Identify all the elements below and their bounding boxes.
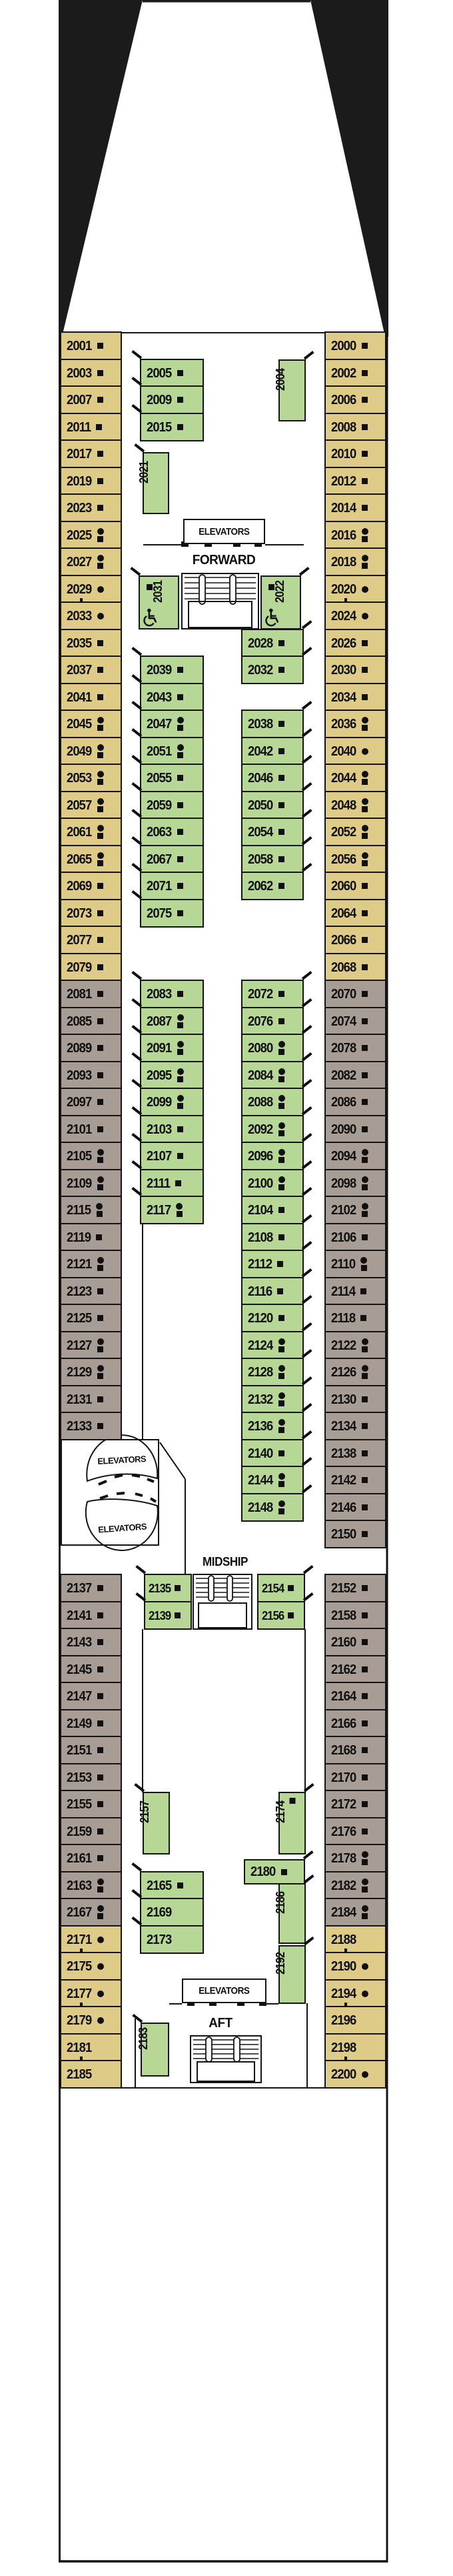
cabin-number: 2192: [274, 1953, 286, 1975]
cabin-2108[interactable]: 2108: [241, 1223, 304, 1252]
cabin-2184[interactable]: 2184: [324, 1898, 386, 1926]
cabin-2192[interactable]: 2192: [278, 1945, 306, 2004]
square-berth-icon: [278, 856, 284, 862]
berth-icons: [278, 775, 284, 781]
cabin-2049[interactable]: 2049: [60, 737, 122, 766]
cabin-number: 2038: [248, 718, 272, 731]
berth-icons: [177, 883, 183, 889]
cabin-2078[interactable]: 2078: [324, 1034, 386, 1062]
cabin-2178[interactable]: 2178: [324, 1844, 386, 1872]
cabin-2157[interactable]: 2157: [143, 1792, 170, 1854]
berth-icons: [97, 1315, 103, 1321]
square-berth-icon: [362, 1720, 368, 1726]
cabin-2110[interactable]: 2110: [324, 1250, 386, 1278]
square-berth-icon: [362, 1913, 368, 1919]
cabin-2172[interactable]: 2172: [324, 1790, 386, 1818]
square-berth-icon: [175, 1180, 181, 1186]
cabin-2061[interactable]: 2061: [60, 818, 122, 846]
cabin-2067[interactable]: 2067: [140, 845, 204, 874]
cabin-2111[interactable]: 2111: [140, 1169, 204, 1198]
cabin-2136[interactable]: 2136: [241, 1412, 304, 1440]
cabin-2070[interactable]: 2070: [324, 980, 386, 1008]
cabin-2002[interactable]: 2002: [324, 359, 386, 387]
berth-icons: [362, 1747, 368, 1753]
cabin-2057[interactable]: 2057: [60, 791, 122, 820]
cabin-2063[interactable]: 2063: [140, 818, 204, 846]
cabin-2080[interactable]: 2080: [241, 1034, 304, 1062]
cabin-2147[interactable]: 2147: [60, 1682, 122, 1710]
cabin-2126[interactable]: 2126: [324, 1358, 386, 1386]
cabin-2173[interactable]: 2173: [140, 1925, 204, 1954]
cabin-2135[interactable]: 2135: [144, 1574, 192, 1602]
berth-icons: [97, 478, 103, 484]
cabin-2038[interactable]: 2038: [241, 710, 304, 738]
cabin-2116[interactable]: 2116: [241, 1277, 304, 1306]
cabin-number: 2078: [331, 1042, 356, 1055]
cabin-2006[interactable]: 2006: [324, 385, 386, 414]
cabin-2138[interactable]: 2138: [324, 1439, 386, 1468]
cabin-2090[interactable]: 2090: [324, 1115, 386, 1144]
cabin-2024[interactable]: 2024: [324, 601, 386, 630]
cabin-2087[interactable]: 2087: [140, 1007, 204, 1036]
cabin-2139[interactable]: 2139: [144, 1601, 192, 1630]
berth-icons: [97, 1149, 104, 1163]
cabin-2035[interactable]: 2035: [60, 629, 122, 658]
cabin-2146[interactable]: 2146: [324, 1493, 386, 1522]
berth-icons: [278, 1392, 285, 1406]
cabin-2117[interactable]: 2117: [140, 1196, 204, 1224]
berth-icons: [362, 343, 368, 349]
cabin-2156[interactable]: 2156: [257, 1601, 305, 1630]
cabin-2034[interactable]: 2034: [324, 683, 386, 712]
cabin-2022[interactable]: 2022: [260, 575, 301, 629]
cabin-2045[interactable]: 2045: [60, 710, 122, 738]
cabin-2089[interactable]: 2089: [60, 1034, 122, 1062]
cabin-number: 2101: [67, 1123, 91, 1136]
cabin-2118[interactable]: 2118: [324, 1304, 386, 1332]
cabin-2190[interactable]: 2190: [324, 1952, 386, 1981]
cabin-2040[interactable]: 2040: [324, 737, 386, 766]
berth-icons: [278, 802, 284, 808]
cabin-2177[interactable]: 2177: [60, 1979, 122, 2008]
square-berth-icon: [97, 883, 103, 889]
cabin-2060[interactable]: 2060: [324, 872, 386, 900]
cabin-2054[interactable]: 2054: [241, 818, 304, 846]
cabin-number: 2092: [248, 1123, 272, 1136]
berth-icons: [177, 829, 183, 835]
circle-berth-icon: [97, 744, 104, 751]
cabin-2119[interactable]: 2119: [60, 1223, 122, 1252]
cabin-number: 2003: [67, 367, 91, 380]
cabin-2153[interactable]: 2153: [60, 1763, 122, 1792]
circle-berth-icon: [97, 1991, 104, 1997]
cabin-2174[interactable]: 2174: [278, 1792, 306, 1854]
cabin-2137[interactable]: 2137: [60, 1574, 122, 1602]
berth-icons: [278, 1315, 284, 1321]
square-berth-icon: [97, 833, 103, 839]
cabin-2101[interactable]: 2101: [60, 1115, 122, 1144]
square-berth-icon: [278, 1481, 284, 1487]
cabin-number: 2032: [248, 664, 272, 677]
cabin-2198[interactable]: 2198: [324, 2033, 386, 2062]
cabin-number: 2060: [331, 880, 356, 893]
cabin-2029[interactable]: 2029: [60, 575, 122, 603]
cabin-2142[interactable]: 2142: [324, 1466, 386, 1494]
cabin-2169[interactable]: 2169: [140, 1898, 204, 1926]
cabin-2196[interactable]: 2196: [324, 2006, 386, 2035]
cabin-number: 2182: [331, 1879, 356, 1892]
square-berth-icon: [177, 1022, 183, 1028]
cabin-2052[interactable]: 2052: [324, 818, 386, 846]
berth-icons: [362, 694, 368, 700]
cabin-2025[interactable]: 2025: [60, 521, 122, 549]
square-berth-icon: [278, 1427, 284, 1433]
cabin-2093[interactable]: 2093: [60, 1061, 122, 1090]
square-berth-icon: [97, 1184, 103, 1190]
cabin-2032[interactable]: 2032: [241, 656, 304, 684]
cabin-2149[interactable]: 2149: [60, 1709, 122, 1738]
cabin-2048[interactable]: 2048: [324, 791, 386, 820]
berth-icons: [360, 1257, 367, 1271]
cabin-2168[interactable]: 2168: [324, 1736, 386, 1764]
cabin-2016[interactable]: 2016: [324, 521, 386, 549]
cabin-2053[interactable]: 2053: [60, 764, 122, 792]
berth-icons: [362, 1612, 368, 1618]
square-berth-icon: [362, 563, 368, 569]
cabin-2001[interactable]: 2001: [60, 331, 122, 360]
cabin-number: 2184: [331, 1906, 356, 1919]
berth-icons: [97, 555, 104, 569]
cabin-2075[interactable]: 2075: [140, 899, 204, 928]
cabin-2200[interactable]: 2200: [324, 2060, 386, 2089]
square-berth-icon: [175, 1612, 181, 1618]
cabin-2019[interactable]: 2019: [60, 467, 122, 495]
cabin-2144[interactable]: 2144: [241, 1466, 304, 1494]
cabin-2026[interactable]: 2026: [324, 629, 386, 658]
cabin-2046[interactable]: 2046: [241, 764, 304, 792]
square-berth-icon: [362, 536, 368, 542]
cabin-2175[interactable]: 2175: [60, 1952, 122, 1981]
cabin-number: 2148: [248, 1501, 272, 1514]
cabin-2171[interactable]: 2171: [60, 1925, 122, 1954]
cabin-2037[interactable]: 2037: [60, 656, 122, 684]
cabin-2039[interactable]: 2039: [140, 656, 204, 684]
cabin-2008[interactable]: 2008: [324, 413, 386, 441]
square-berth-icon: [362, 1099, 368, 1105]
square-berth-icon: [97, 1639, 103, 1645]
square-berth-icon: [97, 1612, 103, 1618]
cabin-2011[interactable]: 2011: [60, 413, 122, 441]
cabin-2064[interactable]: 2064: [324, 899, 386, 928]
midship-elevators-label-1: ELEVATORS: [97, 1454, 147, 1466]
cabin-2163[interactable]: 2163: [60, 1871, 122, 1900]
cabin-2014[interactable]: 2014: [324, 493, 386, 522]
berth-icons: [97, 1099, 103, 1105]
cabin-2158[interactable]: 2158: [324, 1601, 386, 1630]
cabin-2134[interactable]: 2134: [324, 1412, 386, 1440]
cabin-2072[interactable]: 2072: [241, 980, 304, 1008]
cabin-2062[interactable]: 2062: [241, 872, 304, 900]
cabin-2096[interactable]: 2096: [241, 1142, 304, 1170]
berth-icons: [97, 1855, 103, 1861]
cabin-2120[interactable]: 2120: [241, 1304, 304, 1332]
berth-icons: [177, 1126, 183, 1132]
square-berth-icon: [177, 883, 183, 889]
cabin-2161[interactable]: 2161: [60, 1844, 122, 1872]
cabin-2077[interactable]: 2077: [60, 926, 122, 954]
cabin-2162[interactable]: 2162: [324, 1655, 386, 1684]
cabin-2068[interactable]: 2068: [324, 953, 386, 982]
berth-icons: [97, 1585, 103, 1591]
cabin-2079[interactable]: 2079: [60, 953, 122, 982]
cabin-2082[interactable]: 2082: [324, 1061, 386, 1090]
cabin-2069[interactable]: 2069: [60, 872, 122, 900]
cabin-number: 2025: [67, 529, 91, 542]
cabin-2098[interactable]: 2098: [324, 1169, 386, 1198]
cabin-number: 2057: [67, 799, 91, 812]
cabin-2129[interactable]: 2129: [60, 1358, 122, 1386]
cabin-2123[interactable]: 2123: [60, 1277, 122, 1306]
cabin-2103[interactable]: 2103: [140, 1115, 204, 1144]
cabin-2055[interactable]: 2055: [140, 764, 204, 792]
cabin-2127[interactable]: 2127: [60, 1331, 122, 1360]
cabin-number: 2044: [331, 772, 356, 785]
cabin-2004[interactable]: 2004: [278, 359, 306, 421]
cabin-2132[interactable]: 2132: [241, 1385, 304, 1414]
cabin-number: 2158: [331, 1609, 356, 1622]
cabin-2125[interactable]: 2125: [60, 1304, 122, 1332]
cabin-2028[interactable]: 2028: [241, 629, 304, 658]
cabin-number: 2108: [248, 1231, 272, 1244]
berth-icons: [147, 584, 153, 590]
cabin-2112[interactable]: 2112: [241, 1250, 304, 1278]
cabin-2182[interactable]: 2182: [324, 1871, 386, 1900]
cabin-2092[interactable]: 2092: [241, 1115, 304, 1144]
berth-icons: [362, 397, 368, 403]
cabin-2030[interactable]: 2030: [324, 656, 386, 684]
berth-icons: [362, 883, 368, 889]
cabin-2104[interactable]: 2104: [241, 1196, 304, 1224]
berth-icons: [97, 451, 103, 457]
circle-berth-icon: [97, 825, 104, 832]
cabin-2081[interactable]: 2081: [60, 980, 122, 1008]
square-berth-icon: [97, 1315, 103, 1321]
cabin-2114[interactable]: 2114: [324, 1277, 386, 1306]
cabin-2155[interactable]: 2155: [60, 1790, 122, 1818]
berth-icons: [362, 1720, 368, 1726]
cabin-2042[interactable]: 2042: [241, 737, 304, 766]
cabin-2183[interactable]: 2183: [141, 2023, 169, 2077]
cabin-number: 2149: [67, 1717, 91, 1730]
berth-icons: [177, 1153, 183, 1159]
square-berth-icon: [362, 806, 368, 812]
cabin-2179[interactable]: 2179: [60, 2006, 122, 2035]
cabin-2010[interactable]: 2010: [324, 439, 386, 468]
cabin-2106[interactable]: 2106: [324, 1223, 386, 1252]
cabin-number: 2008: [331, 421, 356, 434]
berth-icons: [97, 717, 104, 731]
cabin-2007[interactable]: 2007: [60, 385, 122, 414]
square-berth-icon: [278, 775, 284, 781]
cabin-2130[interactable]: 2130: [324, 1385, 386, 1414]
cabin-2164[interactable]: 2164: [324, 1682, 386, 1710]
cabin-2076[interactable]: 2076: [241, 1007, 304, 1036]
cabin-2128[interactable]: 2128: [241, 1358, 304, 1386]
cabin-2159[interactable]: 2159: [60, 1817, 122, 1846]
square-berth-icon: [362, 1423, 368, 1429]
cabin-number: 2085: [67, 1015, 91, 1028]
cabin-2188[interactable]: 2188: [324, 1925, 386, 1954]
cabin-number: 2171: [67, 1933, 91, 1947]
cabin-2009[interactable]: 2009: [140, 385, 204, 414]
cabin-number: 2073: [67, 907, 91, 920]
cabin-number: 2041: [67, 691, 91, 704]
cabin-2143[interactable]: 2143: [60, 1628, 122, 1656]
berth-icons: [362, 1991, 368, 1997]
square-berth-icon: [278, 802, 284, 808]
cabin-2094[interactable]: 2094: [324, 1142, 386, 1170]
circle-berth-icon: [97, 613, 104, 619]
cabin-2176[interactable]: 2176: [324, 1817, 386, 1846]
cabin-2166[interactable]: 2166: [324, 1709, 386, 1738]
square-berth-icon: [360, 1315, 366, 1321]
cabin-2005[interactable]: 2005: [140, 359, 204, 387]
berth-icons: [362, 1234, 368, 1240]
cabin-2017[interactable]: 2017: [60, 439, 122, 468]
berth-icons: [362, 1072, 368, 1078]
berth-icons: [175, 1180, 181, 1186]
berth-icons: [97, 1774, 103, 1780]
cabin-2015[interactable]: 2015: [140, 413, 204, 441]
cabin-2180[interactable]: 2180: [244, 1859, 305, 1884]
cabin-2122[interactable]: 2122: [324, 1331, 386, 1360]
cabin-2170[interactable]: 2170: [324, 1763, 386, 1792]
square-berth-icon: [362, 397, 368, 403]
cabin-2148[interactable]: 2148: [241, 1493, 304, 1522]
cabin-2083[interactable]: 2083: [140, 980, 204, 1008]
cabin-2020[interactable]: 2020: [324, 575, 386, 603]
cabin-2097[interactable]: 2097: [60, 1088, 122, 1116]
berth-icons: [362, 852, 368, 866]
cabin-2194[interactable]: 2194: [324, 1979, 386, 2008]
square-berth-icon: [177, 802, 183, 808]
cabin-2084[interactable]: 2084: [241, 1061, 304, 1090]
cabin-2059[interactable]: 2059: [140, 791, 204, 820]
cabin-2044[interactable]: 2044: [324, 764, 386, 792]
cabin-2065[interactable]: 2065: [60, 845, 122, 874]
cabin-2141[interactable]: 2141: [60, 1601, 122, 1630]
square-berth-icon: [278, 1234, 284, 1240]
cabin-2021[interactable]: 2021: [143, 452, 169, 514]
cabin-2151[interactable]: 2151: [60, 1736, 122, 1764]
cabin-2131[interactable]: 2131: [60, 1385, 122, 1414]
cabin-number: 2031: [152, 580, 164, 602]
cabin-2102[interactable]: 2102: [324, 1196, 386, 1224]
cabin-2074[interactable]: 2074: [324, 1007, 386, 1036]
cabin-number: 2083: [147, 988, 171, 1001]
square-berth-icon: [278, 991, 284, 997]
cabin-2036[interactable]: 2036: [324, 710, 386, 738]
cabin-2033[interactable]: 2033: [60, 601, 122, 630]
cabin-2160[interactable]: 2160: [324, 1628, 386, 1656]
cabin-2056[interactable]: 2056: [324, 845, 386, 874]
cabin-2012[interactable]: 2012: [324, 467, 386, 495]
cabin-2085[interactable]: 2085: [60, 1007, 122, 1036]
berth-icons: [362, 1396, 368, 1402]
cabin-2124[interactable]: 2124: [241, 1331, 304, 1360]
cabin-2105[interactable]: 2105: [60, 1142, 122, 1170]
cabin-2027[interactable]: 2027: [60, 547, 122, 576]
cabin-2167[interactable]: 2167: [60, 1898, 122, 1926]
square-berth-icon: [277, 1261, 283, 1267]
cabin-2086[interactable]: 2086: [324, 1088, 386, 1116]
cabin-2140[interactable]: 2140: [241, 1439, 304, 1468]
cabin-2071[interactable]: 2071: [140, 872, 204, 900]
cabin-2073[interactable]: 2073: [60, 899, 122, 928]
cabin-2091[interactable]: 2091: [140, 1034, 204, 1062]
cabin-2152[interactable]: 2152: [324, 1574, 386, 1602]
cabin-2121[interactable]: 2121: [60, 1250, 122, 1278]
cabin-2047[interactable]: 2047: [140, 710, 204, 738]
cabin-number: 2005: [147, 367, 171, 380]
cabin-2133[interactable]: 2133: [60, 1412, 122, 1440]
square-berth-icon: [360, 1288, 366, 1294]
cabin-2050[interactable]: 2050: [241, 791, 304, 820]
cabin-2150[interactable]: 2150: [324, 1520, 386, 1548]
cabin-2018[interactable]: 2018: [324, 547, 386, 576]
cabin-2154[interactable]: 2154: [257, 1574, 305, 1602]
cabin-2043[interactable]: 2043: [140, 683, 204, 712]
cabin-2003[interactable]: 2003: [60, 359, 122, 387]
cabin-2066[interactable]: 2066: [324, 926, 386, 954]
square-berth-icon: [177, 856, 183, 862]
cabin-number: 2042: [248, 745, 272, 758]
cabin-2031[interactable]: 2031: [139, 575, 179, 629]
cabin-number: 2099: [147, 1096, 171, 1109]
cabin-2100[interactable]: 2100: [241, 1169, 304, 1198]
cabin-2107[interactable]: 2107: [140, 1142, 204, 1170]
cabin-2095[interactable]: 2095: [140, 1061, 204, 1090]
cabin-2099[interactable]: 2099: [140, 1088, 204, 1116]
cabin-2145[interactable]: 2145: [60, 1655, 122, 1684]
cabin-2041[interactable]: 2041: [60, 683, 122, 712]
cabin-2185[interactable]: 2185: [60, 2060, 122, 2089]
cabin-number: 2069: [67, 880, 91, 893]
cabin-number: 2162: [331, 1663, 356, 1676]
square-berth-icon: [177, 667, 183, 673]
cabin-2058[interactable]: 2058: [241, 845, 304, 874]
square-berth-icon: [177, 1211, 183, 1217]
cabin-2023[interactable]: 2023: [60, 493, 122, 522]
cabin-2115[interactable]: 2115: [60, 1196, 122, 1224]
cabin-2186[interactable]: 2186: [278, 1883, 306, 1944]
cabin-2181[interactable]: 2181: [60, 2033, 122, 2062]
square-berth-icon: [278, 1315, 284, 1321]
cabin-2051[interactable]: 2051: [140, 737, 204, 766]
cabin-2109[interactable]: 2109: [60, 1169, 122, 1198]
square-berth-icon: [278, 640, 284, 646]
circle-berth-icon: [362, 717, 368, 724]
cabin-2165[interactable]: 2165: [140, 1871, 204, 1900]
berth-icons: [278, 1018, 284, 1024]
cabin-number: 2110: [331, 1258, 355, 1271]
cabin-2000[interactable]: 2000: [324, 331, 386, 360]
cabin-2088[interactable]: 2088: [241, 1088, 304, 1116]
cabin-number: 2142: [331, 1474, 356, 1487]
aft-label: AFT: [202, 2016, 240, 2031]
circle-berth-icon: [97, 1338, 104, 1345]
berth-icons: [362, 1878, 368, 1892]
